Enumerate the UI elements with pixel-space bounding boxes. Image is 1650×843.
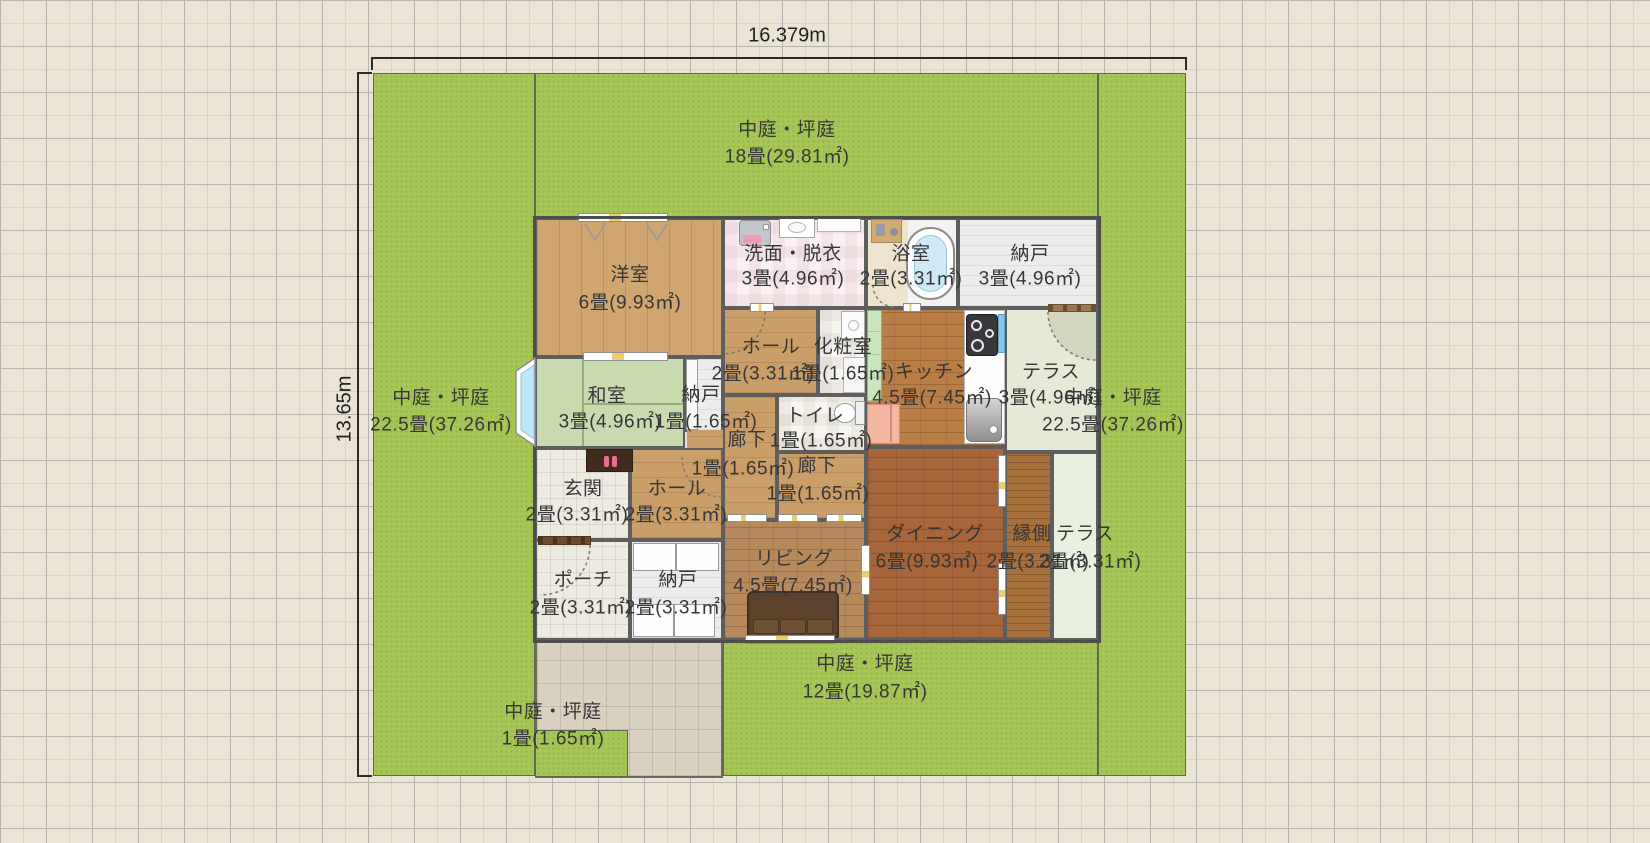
fridge-icon[interactable]: [867, 404, 900, 444]
toilet-icon[interactable]: [834, 401, 866, 427]
room-terrace-engawa[interactable]: [1052, 452, 1098, 640]
dimension-height-label: 13.65m: [334, 376, 357, 443]
room-porch[interactable]: [535, 540, 630, 640]
room-roka-a[interactable]: [723, 395, 777, 520]
room-yoshitsu[interactable]: [535, 218, 723, 357]
room-terrace-kitchen[interactable]: [1005, 308, 1098, 452]
room-hall-lower[interactable]: [630, 448, 723, 540]
sofa-icon[interactable]: [747, 591, 839, 638]
powder-sink-icon[interactable]: [841, 311, 865, 339]
tatami-seam: [582, 403, 683, 405]
garden-bottom[interactable]: [723, 640, 1098, 776]
kitchen-window-strip: [998, 314, 1005, 353]
stove-icon[interactable]: [966, 314, 998, 356]
garden-left[interactable]: [373, 73, 535, 776]
door[interactable]: [750, 303, 774, 312]
dimension-bracket-top: [372, 58, 1186, 70]
bathtub-icon[interactable]: [906, 227, 955, 300]
dimension-bracket-left: [358, 73, 372, 776]
sliding-door[interactable]: [998, 455, 1006, 507]
door-leaf[interactable]: [538, 536, 591, 545]
kitchen-cabinet-icon[interactable]: [867, 310, 882, 402]
closet-icon[interactable]: [674, 604, 715, 637]
window[interactable]: [745, 635, 835, 644]
vanity-sink-icon[interactable]: [779, 218, 815, 238]
shower-unit-icon[interactable]: [871, 219, 902, 243]
closet-icon[interactable]: [633, 604, 674, 637]
window[interactable]: [778, 514, 818, 522]
kitchen-sink-icon[interactable]: [966, 398, 1002, 442]
door-leaf[interactable]: [1048, 304, 1096, 312]
door[interactable]: [903, 303, 921, 312]
room-nando-top[interactable]: [958, 218, 1098, 308]
counter-icon[interactable]: [817, 218, 861, 232]
room-hall-upper[interactable]: [723, 308, 818, 395]
shoe-cabinet-icon[interactable]: [586, 449, 633, 472]
room-engawa[interactable]: [1005, 452, 1052, 640]
room-washitsu[interactable]: [535, 357, 685, 448]
window[interactable]: [727, 514, 767, 522]
garden-small[interactable]: [535, 730, 628, 777]
closet-icon[interactable]: [676, 543, 719, 571]
powder-cabinet-icon[interactable]: [843, 357, 865, 393]
window[interactable]: [826, 514, 862, 522]
garden-right[interactable]: [1098, 73, 1186, 776]
room-roka-b[interactable]: [777, 452, 866, 520]
washing-machine-icon[interactable]: [739, 220, 771, 246]
sliding-door[interactable]: [998, 563, 1006, 615]
room-dining[interactable]: [866, 447, 1005, 640]
window[interactable]: [583, 352, 668, 361]
closet-icon[interactable]: [686, 359, 698, 430]
window[interactable]: [578, 213, 668, 222]
floorplan-canvas: { "dimensions": {"width_label": "16.379m…: [0, 0, 1650, 843]
closet-icon[interactable]: [633, 543, 676, 571]
sliding-door[interactable]: [861, 545, 870, 595]
garden-top[interactable]: [535, 73, 1098, 218]
dimension-width-label: 16.379m: [748, 25, 826, 48]
